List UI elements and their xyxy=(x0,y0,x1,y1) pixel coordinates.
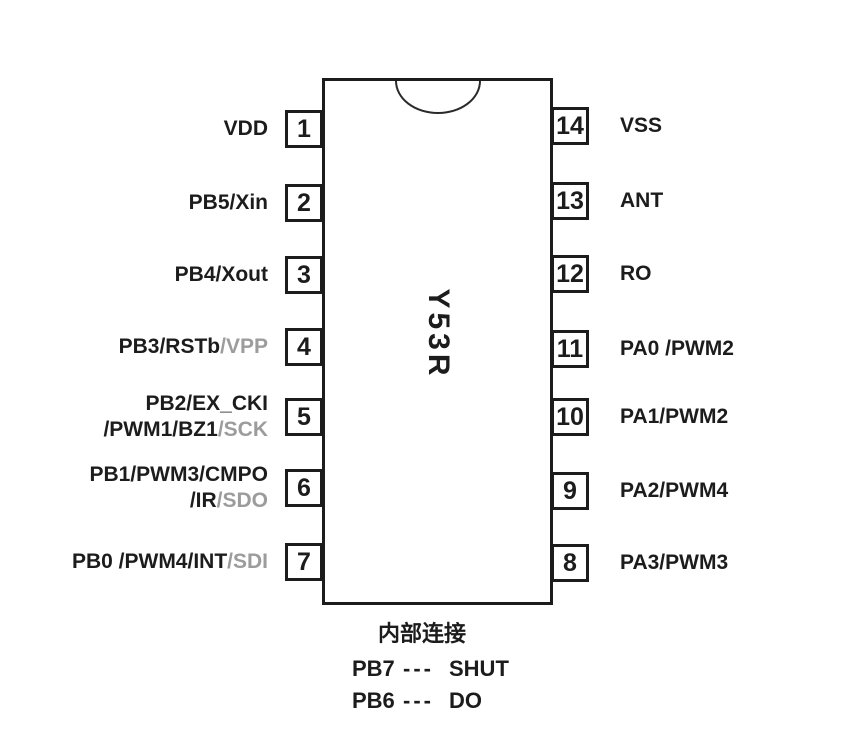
pin-9-box: 9 xyxy=(551,472,589,510)
pin-2-box: 2 xyxy=(285,184,323,222)
pin-3-number: 3 xyxy=(297,261,311,290)
pin-11-box: 11 xyxy=(551,330,589,368)
pin-13-box: 13 xyxy=(551,182,589,220)
pin-1-number: 1 xyxy=(297,115,311,144)
pin-label-alt-function: /SDO xyxy=(217,489,268,512)
pin-label-line: PA0 /PWM2 xyxy=(620,336,734,362)
pin-13-number: 13 xyxy=(556,187,584,216)
pin-4-box: 4 xyxy=(285,328,323,366)
pin-label-main: /PWM1/BZ1 xyxy=(103,418,217,441)
pin-label-main: PB5/Xin xyxy=(189,191,268,214)
pin-4-number: 4 xyxy=(297,333,311,362)
pin-5-number: 5 xyxy=(297,403,311,432)
pin-label-line: VDD xyxy=(0,116,268,142)
pin-label-alt-function: /SCK xyxy=(218,418,268,441)
pin-label-main: PA2/PWM4 xyxy=(620,479,728,502)
pin-label-line: ANT xyxy=(620,188,663,214)
pin-label-main: PB3/RSTb xyxy=(119,335,221,358)
pin-label-alt-function: /VPP xyxy=(220,335,268,358)
pin-13-label: ANT xyxy=(620,188,663,214)
pin-11-number: 11 xyxy=(557,335,583,364)
pin-label-main: PB1/PWM3/CMPO xyxy=(89,463,268,486)
pin-1-label: VDD xyxy=(0,116,268,142)
pin-label-main: VDD xyxy=(224,117,268,140)
pin-label-line: PA3/PWM3 xyxy=(620,550,728,576)
connection-source: PB6 xyxy=(352,688,395,714)
pin-label-main: VSS xyxy=(620,114,662,137)
connection-dashes: --- xyxy=(403,688,434,714)
pin-9-number: 9 xyxy=(563,477,577,506)
pin-12-number: 12 xyxy=(556,260,584,289)
pin-14-box: 14 xyxy=(551,107,589,145)
pin-12-box: 12 xyxy=(551,255,589,293)
pin-label-main: ANT xyxy=(620,189,663,212)
pin-label-line: PB5/Xin xyxy=(0,190,268,216)
chip-name: Y53R xyxy=(421,288,455,379)
pin-8-number: 8 xyxy=(563,549,577,578)
pin-label-main: PB0 /PWM4/INT xyxy=(72,550,227,573)
pin-label-line: PB3/RSTb/VPP xyxy=(0,334,268,360)
connection-target: DO xyxy=(449,688,482,714)
pin-label-line: PA2/PWM4 xyxy=(620,478,728,504)
connection-row: PB6---DO xyxy=(0,688,862,714)
pin-7-label: PB0 /PWM4/INT/SDI xyxy=(0,549,268,575)
pin-label-main: PA3/PWM3 xyxy=(620,551,728,574)
pin-14-label: VSS xyxy=(620,113,662,139)
pin-7-box: 7 xyxy=(285,543,323,581)
pin-2-number: 2 xyxy=(297,189,311,218)
pin-6-number: 6 xyxy=(297,474,311,503)
pin-10-number: 10 xyxy=(556,403,584,432)
pin-14-number: 14 xyxy=(556,112,584,141)
pin-3-label: PB4/Xout xyxy=(0,262,268,288)
pin-5-label: PB2/EX_CKI/PWM1/BZ1/SCK xyxy=(0,391,268,443)
chip-notch-icon xyxy=(395,81,481,114)
pin-7-number: 7 xyxy=(297,548,311,577)
connection-dashes: --- xyxy=(403,656,434,682)
pin-4-label: PB3/RSTb/VPP xyxy=(0,334,268,360)
pin-label-line: PA1/PWM2 xyxy=(620,404,728,430)
pin-label-line: VSS xyxy=(620,113,662,139)
pin-8-box: 8 xyxy=(551,544,589,582)
pin-label-line: PB1/PWM3/CMPO xyxy=(0,462,268,488)
pin-label-alt-function: /SDI xyxy=(227,550,268,573)
pin-9-label: PA2/PWM4 xyxy=(620,478,728,504)
pin-label-line: /PWM1/BZ1/SCK xyxy=(0,417,268,443)
pin-label-main: PA0 /PWM2 xyxy=(620,337,734,360)
pin-3-box: 3 xyxy=(285,256,323,294)
pin-label-main: PB2/EX_CKI xyxy=(145,392,268,415)
pin-6-box: 6 xyxy=(285,469,323,507)
pin-label-line: /IR/SDO xyxy=(0,488,268,514)
pin-10-box: 10 xyxy=(551,398,589,436)
pin-12-label: RO xyxy=(620,261,652,287)
pin-label-main: PB4/Xout xyxy=(175,263,268,286)
internal-connection-title: 内部连接 xyxy=(322,616,522,648)
pin-label-main: PA1/PWM2 xyxy=(620,405,728,428)
pinout-diagram: Y53R 1VDD2PB5/Xin3PB4/Xout4PB3/RSTb/VPP5… xyxy=(0,0,862,739)
chip-body: Y53R xyxy=(322,78,553,605)
pin-2-label: PB5/Xin xyxy=(0,190,268,216)
pin-1-box: 1 xyxy=(285,110,323,148)
pin-label-main: /IR xyxy=(190,489,217,512)
pin-8-label: PA3/PWM3 xyxy=(620,550,728,576)
pin-label-line: PB4/Xout xyxy=(0,262,268,288)
connection-row: PB7---SHUT xyxy=(0,656,862,682)
pin-10-label: PA1/PWM2 xyxy=(620,404,728,430)
pin-label-line: PB0 /PWM4/INT/SDI xyxy=(0,549,268,575)
connection-target: SHUT xyxy=(449,656,509,682)
pin-5-box: 5 xyxy=(285,398,323,436)
pin-6-label: PB1/PWM3/CMPO/IR/SDO xyxy=(0,462,268,514)
connection-source: PB7 xyxy=(352,656,395,682)
pin-label-line: PB2/EX_CKI xyxy=(0,391,268,417)
pin-label-main: RO xyxy=(620,262,652,285)
pin-label-line: RO xyxy=(620,261,652,287)
pin-11-label: PA0 /PWM2 xyxy=(620,336,734,362)
